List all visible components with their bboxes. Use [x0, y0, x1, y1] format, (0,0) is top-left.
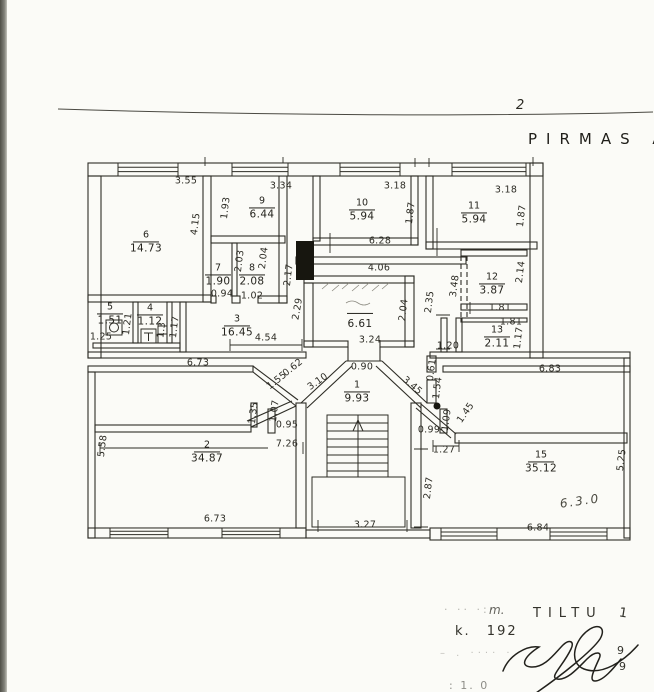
dimension-label: 4.54	[255, 333, 277, 343]
room-label: 6.61	[347, 299, 373, 331]
room-label: 123.87	[479, 264, 505, 297]
dimension-label: 2.87	[423, 476, 435, 499]
dimension-label: 3.48	[449, 274, 461, 297]
margin-digit: 9	[619, 660, 626, 673]
dimension-label: 1.87	[405, 201, 417, 224]
dimension-label: 1.09	[441, 408, 453, 431]
room-label: 1535.12	[525, 442, 557, 475]
dimension-label: 5.25	[616, 448, 628, 471]
handwritten-annotation: 6.3.0	[559, 491, 601, 511]
room-label: 71.90	[205, 255, 231, 288]
dimension-label: 1.02	[241, 291, 263, 301]
dimension-label: 2.03	[234, 249, 246, 272]
dimension-label: 3.45	[400, 375, 423, 397]
dimension-label: 6.73	[204, 514, 226, 524]
room-label: 19.93	[344, 372, 370, 405]
dimension-label: 0.95	[276, 420, 298, 430]
room-label: 614.73	[130, 222, 162, 255]
room-label: 105.94	[349, 190, 375, 223]
dimension-label: 1.81	[489, 303, 511, 313]
dimension-label: 2.17	[283, 263, 295, 286]
dimension-label: 2.04	[398, 298, 410, 321]
dimension-label: 1.21	[122, 312, 134, 335]
dimension-label: 6.28	[369, 236, 391, 246]
dimension-label: 1.25	[90, 332, 112, 342]
dimension-label: 7.26	[276, 439, 298, 449]
faint-marks-2: – . ···· ·	[440, 648, 514, 659]
dimension-label: 6.84	[527, 523, 549, 533]
floorplan-labels: 614.7396.44105.94115.9471.9082.08123.871…	[0, 0, 654, 692]
dimension-label: 6.73	[187, 358, 209, 368]
dimension-label: 0.99	[418, 425, 440, 435]
room-label: 96.44	[249, 188, 275, 221]
scale-note: : 1. 0	[449, 679, 489, 692]
margin-digit: 9	[617, 644, 624, 657]
street-name: TILTU	[533, 606, 603, 621]
dimension-label: 3.27	[354, 520, 376, 530]
room-label: 234.87	[191, 432, 223, 465]
dimension-label: 2.35	[424, 290, 436, 313]
m-label: m.	[489, 603, 505, 617]
dimension-label: 2.29	[291, 297, 304, 321]
dimension-label: 1.35	[248, 401, 260, 424]
dimension-label: 3.18	[384, 181, 406, 191]
dimension-label: 1.87	[516, 204, 528, 227]
dimension-label: 3.34	[270, 181, 292, 191]
dimension-label: 5.58	[97, 434, 109, 457]
dimension-label: 0.62	[281, 357, 304, 378]
dimension-label: 3.18	[495, 185, 517, 195]
dimension-label: 3.55	[175, 176, 197, 186]
room-label: 316.45	[221, 306, 253, 339]
dimension-label: 0.94	[211, 289, 233, 299]
dimension-label: 1.17	[169, 315, 181, 338]
room-label: 115.94	[461, 193, 487, 226]
dimension-label: 1.54	[432, 376, 444, 399]
dimension-label: 1.17	[513, 326, 525, 349]
dimension-label: 4.15	[190, 212, 202, 235]
dimension-label: 3.10	[306, 372, 330, 393]
dimension-label: 1.45	[456, 401, 477, 425]
scanned-floorplan-page: 2 PIRMAS A 614.7396.44105.94115.9471.908…	[0, 0, 654, 692]
dimension-label: 3.24	[359, 335, 381, 345]
dimension-label: 1.3	[156, 321, 167, 338]
dimension-label: 1.20	[437, 341, 459, 351]
room-label: 51.51	[97, 294, 123, 327]
dimension-label: 2.14	[515, 260, 527, 283]
dimension-label: 6.83	[539, 364, 561, 374]
dimension-label: 1.27	[433, 445, 455, 455]
house-number: k. 192	[455, 624, 518, 639]
dimension-label: 2.04	[258, 246, 270, 269]
dimension-label: 4.06	[368, 263, 390, 273]
dimension-label: 1.93	[220, 196, 232, 219]
dimension-label: 1.81	[500, 317, 522, 327]
dimension-label: 0.90	[351, 362, 373, 372]
